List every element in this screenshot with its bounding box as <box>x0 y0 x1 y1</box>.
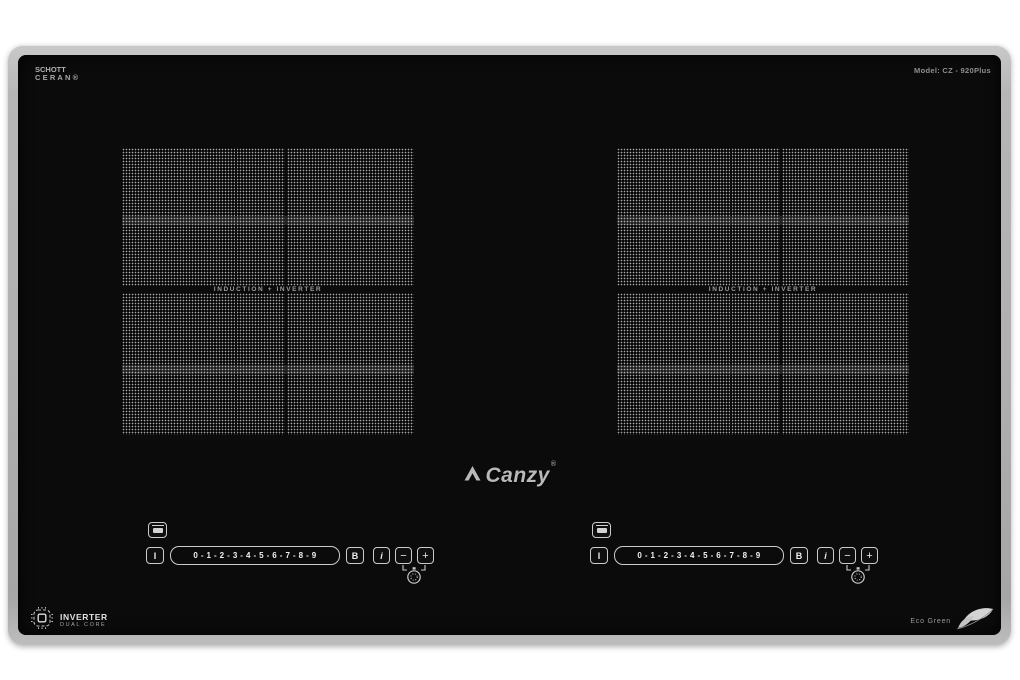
pan-icon <box>592 522 611 538</box>
cooking-zone-left[interactable]: INDUCTION + INVERTER <box>122 148 414 435</box>
zone-label: INDUCTION + INVERTER <box>617 286 909 293</box>
zone-label: INDUCTION + INVERTER <box>122 286 414 293</box>
registered-mark: ® <box>551 461 557 468</box>
model-label: Model: CZ - 920Plus <box>914 66 991 75</box>
zone-seam <box>235 293 237 435</box>
power-key-left[interactable]: I <box>146 547 164 564</box>
control-panel-left: I 0 - 1 - 2 - 3 - 4 - 5 - 6 - 7 - 8 - 9 … <box>146 520 438 584</box>
info-key-left[interactable]: i <box>373 547 390 564</box>
power-slider-right[interactable]: 0 - 1 - 2 - 3 - 4 - 5 - 6 - 7 - 8 - 9 <box>614 546 784 565</box>
chevron-peak-icon <box>464 466 481 486</box>
glass-surface: SCHOTT CERAN® Model: CZ - 920Plus INDUCT… <box>18 55 1001 635</box>
stopwatch-icon <box>840 564 880 591</box>
stopwatch-icon <box>396 564 436 591</box>
cooking-zone-right[interactable]: INDUCTION + INVERTER <box>617 148 909 435</box>
pan-icon <box>148 522 167 538</box>
zone-highlight-band <box>122 365 414 374</box>
zone-seam <box>285 293 287 435</box>
canzy-logo: Canzy® <box>450 459 570 493</box>
eco-green-badge: Eco Green <box>910 605 995 638</box>
logo-text: Canzy® <box>485 464 555 488</box>
leaf-icon <box>955 605 995 638</box>
zone-right-top-surface <box>617 148 909 286</box>
timer-minus-key-left[interactable]: − <box>395 547 412 564</box>
timer-minus-key-right[interactable]: − <box>839 547 856 564</box>
power-key-right[interactable]: I <box>590 547 608 564</box>
pan-shape <box>597 528 607 533</box>
cooktop-frame: SCHOTT CERAN® Model: CZ - 920Plus INDUCT… <box>8 45 1011 645</box>
inverter-title: INVERTER <box>60 612 108 622</box>
control-panel-right: I 0 - 1 - 2 - 3 - 4 - 5 - 6 - 7 - 8 - 9 … <box>590 520 882 584</box>
zone-left-top-surface <box>122 148 414 286</box>
schott-ceran-logo: SCHOTT CERAN® <box>35 66 80 82</box>
timer-plus-key-right[interactable]: + <box>861 547 878 564</box>
booster-key-left[interactable]: B <box>346 547 364 564</box>
eco-label: Eco Green <box>910 618 951 625</box>
ceran-line: CERAN® <box>35 74 80 82</box>
zone-seam <box>730 293 732 435</box>
zone-highlight-band <box>617 216 909 225</box>
inverter-badge-text: INVERTER DUAL CORE <box>60 612 108 629</box>
inverter-subtitle: DUAL CORE <box>60 622 108 629</box>
power-slider-left[interactable]: 0 - 1 - 2 - 3 - 4 - 5 - 6 - 7 - 8 - 9 <box>170 546 340 565</box>
zone-highlight-band <box>617 365 909 374</box>
pan-shape <box>153 528 163 533</box>
zone-highlight-band <box>122 216 414 225</box>
zone-right-bottom-surface <box>617 293 909 435</box>
zone-seam <box>780 293 782 435</box>
zone-left-bottom-surface <box>122 293 414 435</box>
info-key-right[interactable]: i <box>817 547 834 564</box>
timer-plus-key-left[interactable]: + <box>417 547 434 564</box>
inverter-dualcore-badge: INVERTER DUAL CORE <box>30 606 108 635</box>
chip-icon <box>30 606 54 635</box>
booster-key-right[interactable]: B <box>790 547 808 564</box>
